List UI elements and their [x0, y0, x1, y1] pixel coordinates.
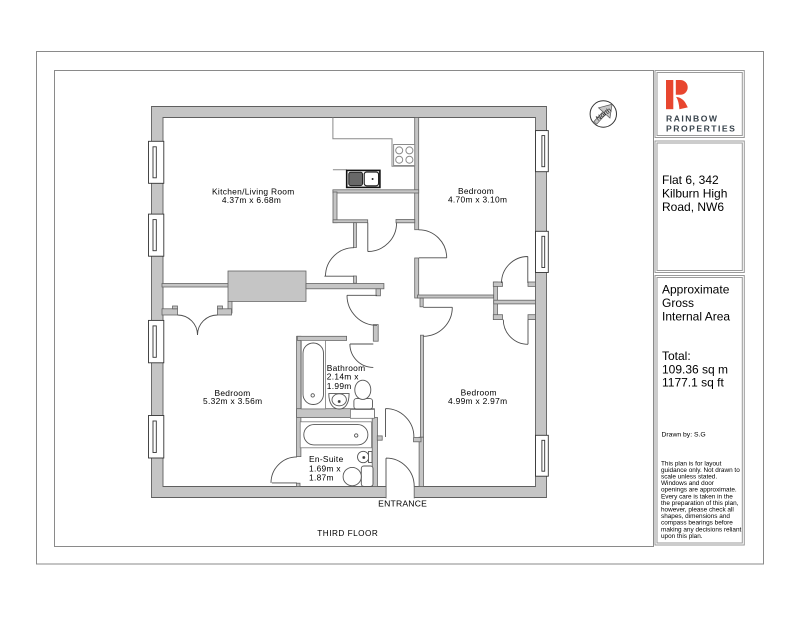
svg-text:4.37m x 6.68m: 4.37m x 6.68m — [222, 195, 281, 205]
svg-text:En-Suite: En-Suite — [309, 454, 344, 464]
svg-text:Road, NW6: Road, NW6 — [662, 200, 724, 214]
svg-text:Internal Area: Internal Area — [662, 309, 730, 323]
svg-text:Drawn by: S.G: Drawn by: S.G — [662, 432, 706, 439]
svg-text:1177.1 sq ft: 1177.1 sq ft — [662, 375, 724, 389]
svg-text:ENTRANCE: ENTRANCE — [378, 499, 427, 509]
svg-text:Total:: Total: — [662, 349, 691, 363]
svg-text:upon this plan.: upon this plan. — [661, 533, 703, 540]
svg-text:PROPERTIES: PROPERTIES — [666, 124, 736, 134]
svg-text:5.32m x 3.56m: 5.32m x 3.56m — [203, 396, 262, 406]
svg-text:RAINBOW: RAINBOW — [666, 114, 719, 124]
svg-text:1.87m: 1.87m — [309, 473, 334, 483]
svg-text:4.70m x 3.10m: 4.70m x 3.10m — [448, 195, 507, 205]
svg-text:1.99m: 1.99m — [327, 381, 352, 391]
svg-text:Flat 6, 342: Flat 6, 342 — [662, 173, 719, 187]
svg-text:Gross: Gross — [662, 296, 694, 310]
svg-text:Approximate: Approximate — [662, 283, 730, 297]
svg-text:2.14m x: 2.14m x — [327, 372, 359, 382]
svg-text:THIRD FLOOR: THIRD FLOOR — [317, 529, 378, 538]
svg-text:4.99m x 2.97m: 4.99m x 2.97m — [448, 396, 507, 406]
svg-text:109.36 sq m: 109.36 sq m — [662, 362, 728, 376]
svg-text:Kilburn High: Kilburn High — [662, 186, 727, 200]
